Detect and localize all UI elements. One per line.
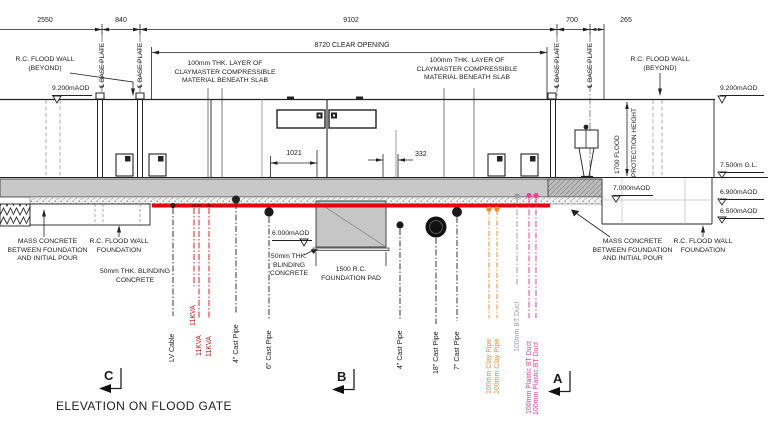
blinding-note-pad: 50mm THK. BLINDING CONCRETE [266,253,312,279]
base-plate-label-3: ℄ BASE PLATE [553,43,562,88]
label-cast-pipe-4a: 4" Cast Pipe [232,324,241,363]
dim-9102: 9102 [331,17,371,26]
drawing-title: ELEVATION ON FLOOD GATE [56,399,232,413]
level-6500: 6.500mAOD [720,208,764,219]
foundation-pad-note: 1500 R.C. FOUNDATION PAD [311,266,391,283]
section-marker-c: C [104,368,113,383]
label-plastic-bt-duct-2: 100mm Plastic BT Duct [532,342,541,415]
elevation-drawing: 2550 840 9102 700 265 8720 CLEAR OPENING… [0,0,768,432]
label-cast-pipe-6: 6" Cast Pipe [265,330,274,369]
dim-2550: 2550 [25,17,65,26]
label-clay-pipe-2: 100mm Clay Pipe [493,339,502,394]
dim-332: 332 [415,151,427,160]
section-marker-b: B [337,369,346,384]
flood-wall-beyond-left: R.C. FLOOD WALL (BEYOND) [5,56,85,73]
dim-840: 840 [101,17,141,26]
blinding-note-left: 50mm THK. BLINDING CONCRETE [95,268,175,285]
label-11kva-3: 11KVA [205,336,214,357]
base-plate-label-4: ℄ BASE PLATE [586,43,595,88]
dim-clear-opening: 8720 CLEAR OPENING [292,42,412,51]
level-7500-gl: 7.500m G.L. [720,162,764,173]
label-cast-pipe-4b: 4" Cast Pipe [396,330,405,369]
flood-height-label-2: PROTECTION HEIGHT [630,108,639,177]
flood-height-label-1: 1700 FLOOD [613,135,622,174]
label-11kva-2: 11KVA [195,335,204,356]
flood-wall-beyond-right: R.C. FLOOD WALL (BEYOND) [620,56,700,73]
label-cast-pipe-7: 7" Cast Pipe [453,331,462,370]
base-plate-label-2: ℄ BASE PLATE [136,43,145,88]
dim-1021: 1021 [274,150,314,159]
structure [0,88,715,177]
label-cast-pipe-18: 18" Cast Pipe [432,331,441,374]
label-lv-cable: LV Cable [168,334,177,362]
wall-foundation-note-right: R.C. FLOOD WALL FOUNDATION [663,238,743,255]
level-9200-right: 9.200mAOD [720,85,764,96]
base-plate-label-1: ℄ BASE PLATE [98,43,107,88]
level-9200-left: 9.200mAOD [52,85,92,96]
dim-265: 265 [606,17,646,26]
wall-foundation-note-left: R.C. FLOOD WALL FOUNDATION [79,238,159,255]
claymaster-note-left: 100mm THK. LAYER OF CLAYMASTER COMPRESSI… [170,60,280,86]
level-6900: 6.900mAOD [720,189,764,200]
level-7000: 7.000mAOD [613,185,653,196]
gate-machinery [575,125,598,177]
label-bt-duct: 100mm BT Duct [513,302,522,352]
dim-700: 700 [552,17,592,26]
section-marker-a: A [553,371,562,386]
level-6000: 6.000mAOD [272,230,312,241]
label-11kva-1: 11KVA [189,305,198,326]
claymaster-note-right: 100mm THK. LAYER OF CLAYMASTER COMPRESSI… [412,57,522,83]
